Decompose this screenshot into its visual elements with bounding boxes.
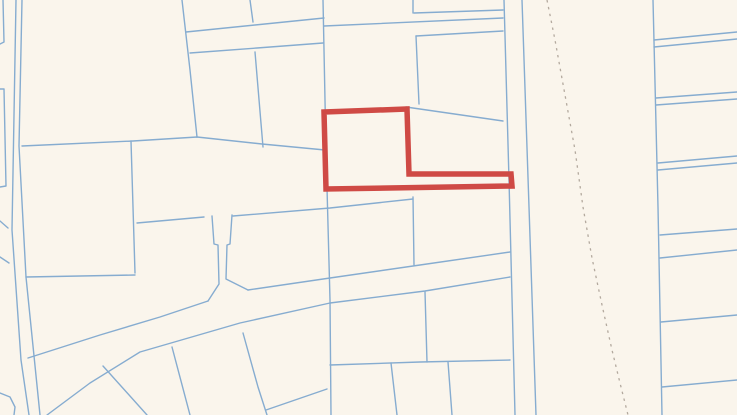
parcel-line-vert-mid-413 (413, 197, 414, 265)
map-canvas[interactable] (0, 0, 737, 415)
map-background (0, 0, 737, 415)
map-viewport[interactable] (0, 0, 737, 415)
